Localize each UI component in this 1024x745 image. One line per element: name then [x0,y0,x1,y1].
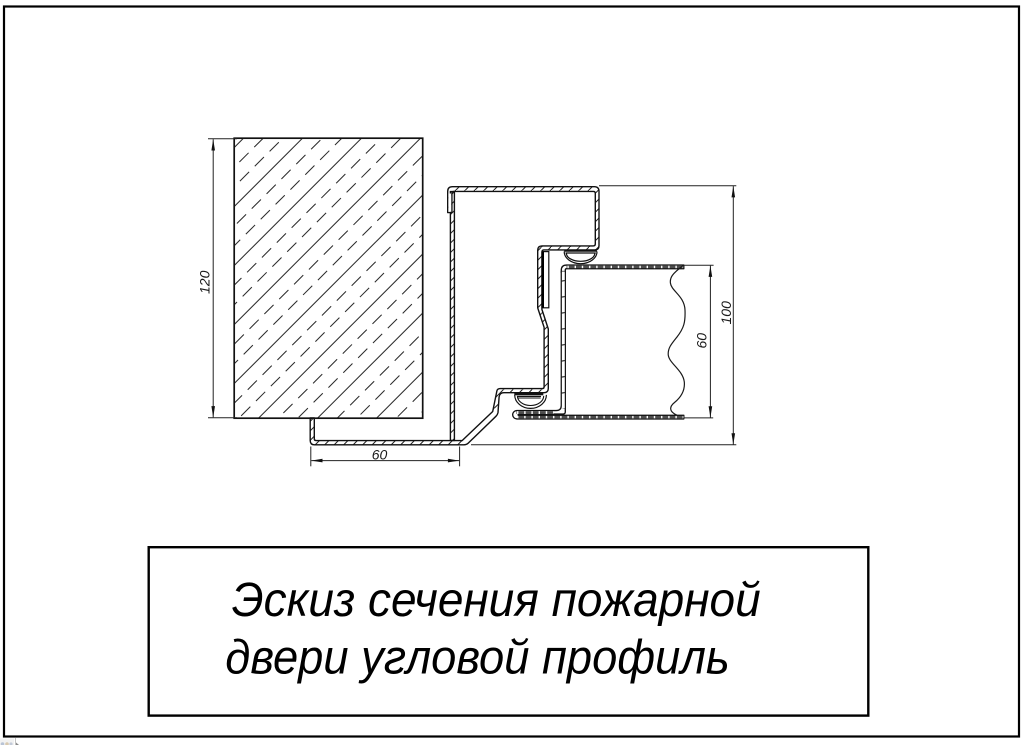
svg-text:60: 60 [372,446,388,462]
svg-text:Эскиз сечения пожарной: Эскиз сечения пожарной [232,574,761,627]
svg-text:100: 100 [718,301,734,325]
svg-text:60: 60 [694,333,710,349]
svg-text:120: 120 [197,270,213,294]
svg-text:двери угловой профиль: двери угловой профиль [225,632,729,685]
